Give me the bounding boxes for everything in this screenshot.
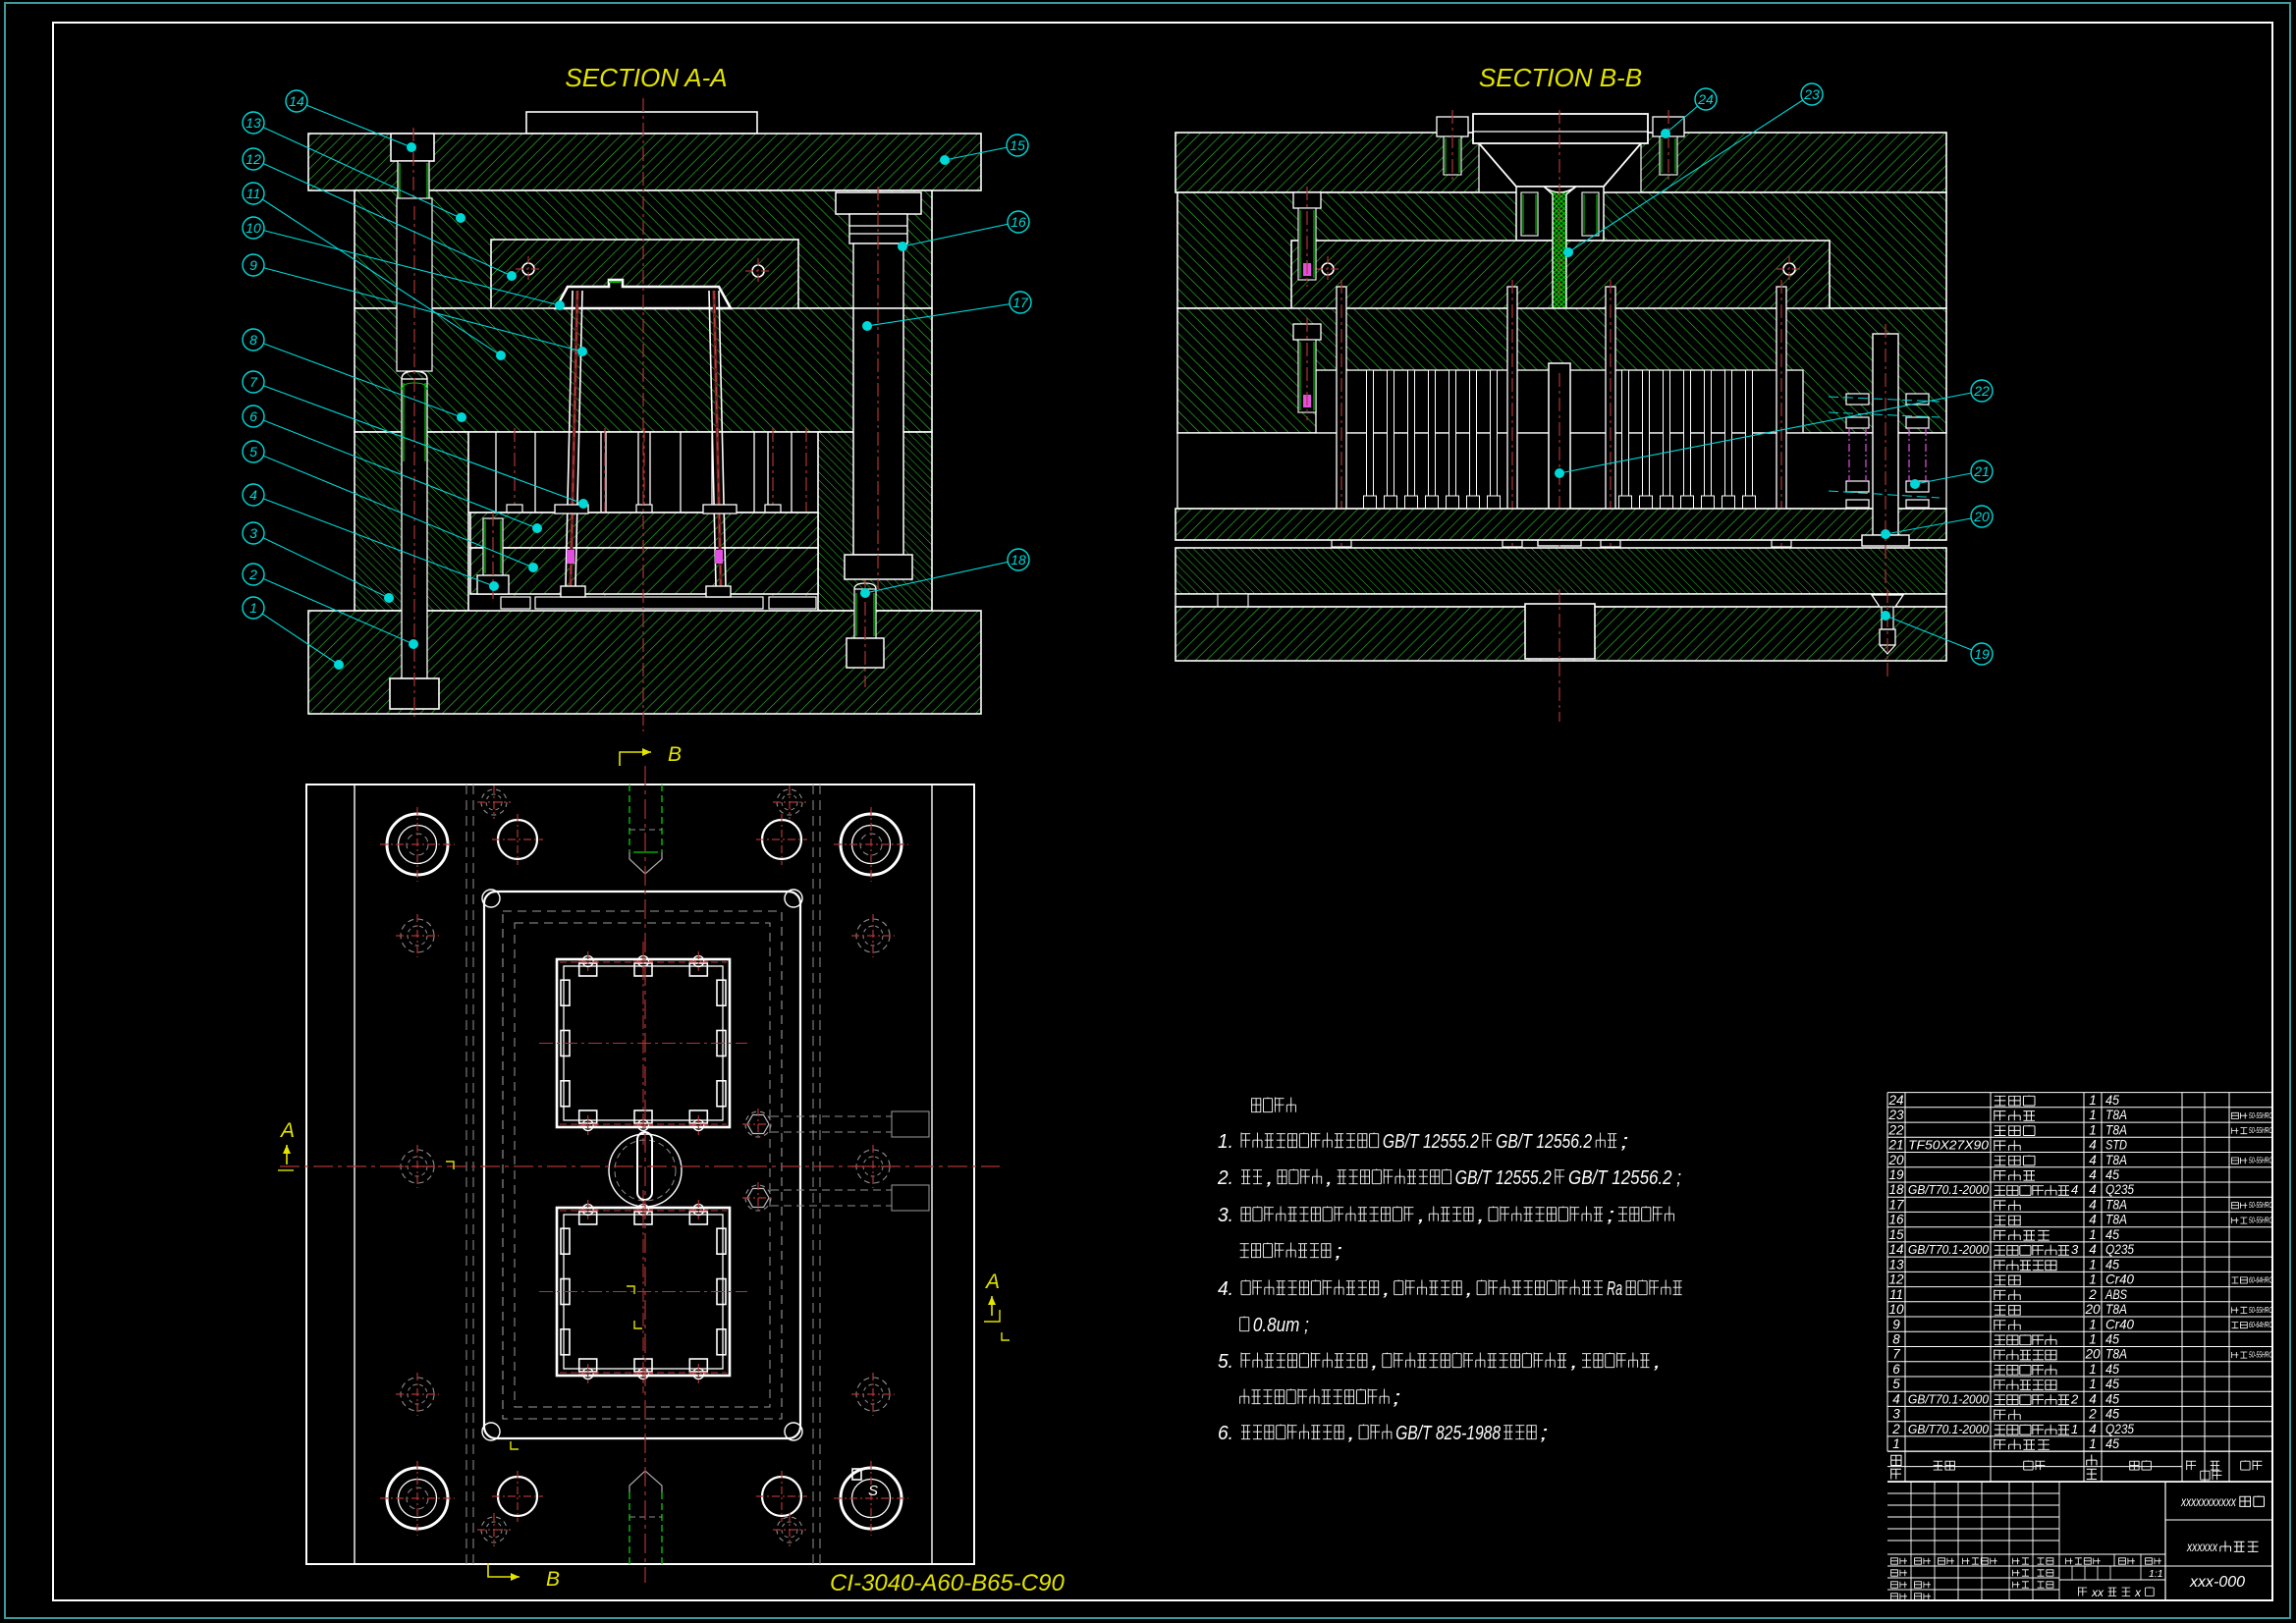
svg-text:6.: 6. bbox=[1218, 1423, 1233, 1444]
svg-text:17: 17 bbox=[1888, 1197, 1904, 1212]
svg-text:1: 1 bbox=[2089, 1227, 2097, 1242]
svg-text:1: 1 bbox=[2089, 1108, 2097, 1122]
svg-text:T8A: T8A bbox=[2105, 1107, 2127, 1122]
svg-text:1: 1 bbox=[2089, 1272, 2097, 1287]
svg-text:8: 8 bbox=[249, 332, 257, 348]
svg-text:18: 18 bbox=[1888, 1182, 1904, 1197]
svg-text:1: 1 bbox=[2089, 1317, 2097, 1331]
svg-text:11: 11 bbox=[246, 186, 261, 201]
svg-text:GB/T 12556.2: GB/T 12556.2 bbox=[1496, 1131, 1592, 1153]
svg-text:19: 19 bbox=[1974, 646, 1990, 662]
svg-text:45: 45 bbox=[2105, 1361, 2119, 1377]
svg-text:50-55HRC: 50-55HRC bbox=[2249, 1110, 2273, 1120]
svg-text:0.8um ;: 0.8um ; bbox=[1253, 1315, 1309, 1336]
svg-text:45: 45 bbox=[2105, 1166, 2119, 1182]
svg-text:4.: 4. bbox=[1218, 1278, 1233, 1300]
svg-text:,: , bbox=[1570, 1351, 1578, 1373]
svg-text:2: 2 bbox=[2070, 1391, 2079, 1406]
svg-text:16: 16 bbox=[1888, 1213, 1904, 1227]
svg-text:50-55HRC: 50-55HRC bbox=[2249, 1350, 2273, 1360]
svg-text:13: 13 bbox=[1888, 1257, 1904, 1271]
svg-text:20: 20 bbox=[1887, 1153, 1904, 1167]
svg-text:12: 12 bbox=[1888, 1272, 1904, 1287]
svg-text:S: S bbox=[868, 1483, 878, 1499]
svg-text:GB/T70.1-2000: GB/T70.1-2000 bbox=[1908, 1422, 1990, 1436]
svg-text:17: 17 bbox=[1012, 295, 1029, 310]
svg-text:T8A: T8A bbox=[2105, 1196, 2127, 1212]
svg-text:2: 2 bbox=[2088, 1407, 2097, 1422]
svg-text:ABS: ABS bbox=[2105, 1286, 2127, 1302]
svg-text:24: 24 bbox=[1697, 91, 1714, 107]
svg-text:6: 6 bbox=[249, 408, 257, 424]
svg-text:2: 2 bbox=[2088, 1287, 2097, 1302]
svg-text:4: 4 bbox=[2089, 1197, 2097, 1212]
svg-text:1.: 1. bbox=[1218, 1131, 1233, 1153]
svg-text:Q235: Q235 bbox=[2105, 1181, 2134, 1197]
svg-text:1: 1 bbox=[2089, 1377, 2097, 1391]
svg-text:;: ; bbox=[1335, 1241, 1342, 1263]
svg-text:20: 20 bbox=[2084, 1347, 2101, 1362]
svg-text:xxx-000: xxx-000 bbox=[2189, 1574, 2245, 1591]
svg-text:xxxxxx: xxxxxx bbox=[2186, 1540, 2218, 1554]
svg-text:9: 9 bbox=[1892, 1317, 1900, 1331]
svg-text:3.: 3. bbox=[1218, 1205, 1233, 1226]
svg-text:14: 14 bbox=[1888, 1242, 1903, 1257]
svg-text:,: , bbox=[1465, 1278, 1473, 1300]
svg-text:4: 4 bbox=[2089, 1153, 2097, 1167]
svg-text:1: 1 bbox=[2089, 1093, 2097, 1108]
svg-text:23: 23 bbox=[1803, 86, 1820, 102]
svg-text:24: 24 bbox=[1887, 1093, 1903, 1108]
svg-text:19: 19 bbox=[1888, 1167, 1904, 1182]
svg-text:,: , bbox=[1371, 1351, 1379, 1373]
svg-text:;: ; bbox=[1540, 1423, 1548, 1444]
svg-text:,: , bbox=[1654, 1351, 1662, 1373]
svg-text:,: , bbox=[1266, 1167, 1274, 1189]
svg-text:xx: xx bbox=[2091, 1586, 2105, 1599]
svg-text:50-55HRC: 50-55HRC bbox=[2249, 1305, 2273, 1315]
svg-text:4: 4 bbox=[2089, 1138, 2097, 1153]
svg-text:,: , bbox=[1347, 1423, 1355, 1444]
svg-text:45: 45 bbox=[2105, 1390, 2119, 1406]
svg-text:50-55HRC: 50-55HRC bbox=[2249, 1156, 2273, 1165]
svg-text:4: 4 bbox=[2089, 1182, 2097, 1197]
svg-text:7: 7 bbox=[1892, 1347, 1900, 1362]
svg-text:50-55HRC: 50-55HRC bbox=[2249, 1125, 2273, 1135]
svg-text:1: 1 bbox=[249, 600, 257, 616]
svg-text:TF50X27X90: TF50X27X90 bbox=[1908, 1138, 1990, 1153]
svg-text:45: 45 bbox=[2105, 1256, 2119, 1271]
svg-text:5: 5 bbox=[249, 444, 257, 460]
svg-text:1: 1 bbox=[2089, 1332, 2097, 1347]
svg-text:45: 45 bbox=[2105, 1406, 2119, 1422]
svg-text:GB/T 12555.2: GB/T 12555.2 bbox=[1455, 1167, 1552, 1189]
svg-text:16: 16 bbox=[1011, 214, 1026, 230]
svg-text:B: B bbox=[546, 1568, 560, 1591]
svg-text:2: 2 bbox=[1891, 1422, 1900, 1436]
svg-text:T8A: T8A bbox=[2105, 1121, 2127, 1137]
svg-text:5: 5 bbox=[1892, 1377, 1900, 1391]
svg-text:1: 1 bbox=[2089, 1362, 2097, 1377]
svg-text:GB/T70.1-2000: GB/T70.1-2000 bbox=[1908, 1182, 1990, 1197]
svg-text:45: 45 bbox=[2105, 1435, 2119, 1451]
svg-text:GB/T 12555.2: GB/T 12555.2 bbox=[1383, 1131, 1479, 1153]
svg-text:45: 45 bbox=[2105, 1092, 2119, 1108]
svg-text:1:1: 1:1 bbox=[2149, 1568, 2163, 1580]
svg-text:22: 22 bbox=[1973, 383, 1990, 399]
svg-text:22: 22 bbox=[1887, 1122, 1904, 1137]
svg-text:3: 3 bbox=[249, 525, 257, 541]
svg-text:1: 1 bbox=[2089, 1436, 2097, 1451]
svg-text:18: 18 bbox=[1011, 552, 1026, 568]
svg-text:x: x bbox=[2134, 1586, 2142, 1599]
svg-text:GB/T70.1-2000: GB/T70.1-2000 bbox=[1908, 1242, 1990, 1257]
svg-text:4: 4 bbox=[2089, 1167, 2097, 1182]
svg-text:21: 21 bbox=[1973, 463, 1990, 479]
svg-text:10: 10 bbox=[1888, 1302, 1904, 1317]
svg-text:50-55HRC: 50-55HRC bbox=[2249, 1200, 2273, 1210]
svg-text:xxxxxxxxxxx: xxxxxxxxxxx bbox=[2180, 1494, 2237, 1509]
svg-text:4: 4 bbox=[2089, 1213, 2097, 1227]
svg-text:60-64HRC: 60-64HRC bbox=[2249, 1320, 2273, 1329]
svg-text:4: 4 bbox=[2089, 1422, 2097, 1436]
svg-text:6: 6 bbox=[1892, 1362, 1900, 1377]
svg-text:SECTION A-A: SECTION A-A bbox=[565, 63, 727, 92]
svg-text:8: 8 bbox=[1892, 1332, 1900, 1347]
svg-text:23: 23 bbox=[1887, 1108, 1904, 1122]
svg-text:10: 10 bbox=[246, 220, 261, 236]
svg-text:60-64HRC: 60-64HRC bbox=[2249, 1274, 2273, 1284]
svg-text:11: 11 bbox=[1889, 1287, 1903, 1302]
svg-text:1: 1 bbox=[2089, 1122, 2097, 1137]
svg-text:T8A: T8A bbox=[2105, 1152, 2127, 1167]
svg-text:GB/T70.1-2000: GB/T70.1-2000 bbox=[1908, 1391, 1990, 1406]
svg-text:7: 7 bbox=[249, 374, 258, 390]
svg-text:9: 9 bbox=[249, 257, 257, 273]
svg-text:;: ; bbox=[1620, 1131, 1628, 1153]
svg-text:A: A bbox=[984, 1271, 1000, 1293]
svg-text:2.: 2. bbox=[1217, 1167, 1233, 1189]
svg-text:;: ; bbox=[1393, 1387, 1400, 1409]
svg-text:2: 2 bbox=[248, 567, 257, 582]
svg-text:50-55HRC: 50-55HRC bbox=[2249, 1216, 2273, 1225]
svg-text:T8A: T8A bbox=[2105, 1346, 2127, 1362]
svg-text:15: 15 bbox=[1010, 137, 1025, 153]
svg-text:;: ; bbox=[1607, 1205, 1614, 1226]
svg-text:5.: 5. bbox=[1218, 1351, 1233, 1373]
svg-text:1: 1 bbox=[2089, 1257, 2097, 1271]
svg-text:4: 4 bbox=[1892, 1391, 1900, 1406]
svg-text:CI-3040-A60-B65-C90: CI-3040-A60-B65-C90 bbox=[830, 1570, 1065, 1596]
svg-text:4: 4 bbox=[2089, 1391, 2097, 1406]
svg-text:Ra: Ra bbox=[1607, 1278, 1622, 1300]
svg-text:20: 20 bbox=[1973, 509, 1990, 524]
svg-text:15: 15 bbox=[1888, 1227, 1904, 1242]
svg-text:3: 3 bbox=[1892, 1407, 1900, 1422]
svg-text:GB/T 12556.2 ;: GB/T 12556.2 ; bbox=[1568, 1167, 1681, 1189]
svg-text:45: 45 bbox=[2105, 1331, 2119, 1347]
svg-text:,: , bbox=[1326, 1167, 1334, 1189]
svg-text:45: 45 bbox=[2105, 1376, 2119, 1391]
svg-text:Q235: Q235 bbox=[2105, 1421, 2134, 1436]
svg-text:4: 4 bbox=[2071, 1182, 2078, 1197]
svg-text:4: 4 bbox=[2089, 1242, 2097, 1257]
svg-text:B: B bbox=[668, 743, 682, 766]
svg-text:1: 1 bbox=[2071, 1422, 2078, 1436]
svg-text:4: 4 bbox=[249, 487, 257, 503]
svg-text:T8A: T8A bbox=[2105, 1212, 2127, 1227]
svg-text:,: , bbox=[1383, 1278, 1391, 1300]
svg-text:3: 3 bbox=[2071, 1242, 2079, 1257]
svg-text:20: 20 bbox=[2084, 1302, 2101, 1317]
svg-text:Q235: Q235 bbox=[2105, 1241, 2134, 1257]
svg-text:STD: STD bbox=[2105, 1137, 2127, 1153]
svg-text:GB/T 825-1988: GB/T 825-1988 bbox=[1395, 1423, 1501, 1444]
svg-text:Cr40: Cr40 bbox=[2105, 1316, 2134, 1331]
svg-text:,: , bbox=[1418, 1205, 1426, 1226]
svg-text:13: 13 bbox=[246, 115, 261, 131]
svg-text:SECTION B-B: SECTION B-B bbox=[1479, 63, 1642, 92]
svg-text:T8A: T8A bbox=[2105, 1301, 2127, 1317]
svg-text:Cr40: Cr40 bbox=[2105, 1271, 2134, 1287]
svg-text:14: 14 bbox=[289, 93, 304, 109]
svg-text:A: A bbox=[279, 1119, 295, 1142]
svg-text:1: 1 bbox=[1892, 1436, 1900, 1451]
svg-text:12: 12 bbox=[246, 151, 261, 167]
svg-text:21: 21 bbox=[1887, 1138, 1903, 1153]
svg-text:45: 45 bbox=[2105, 1226, 2119, 1242]
svg-text:,: , bbox=[1477, 1205, 1485, 1226]
